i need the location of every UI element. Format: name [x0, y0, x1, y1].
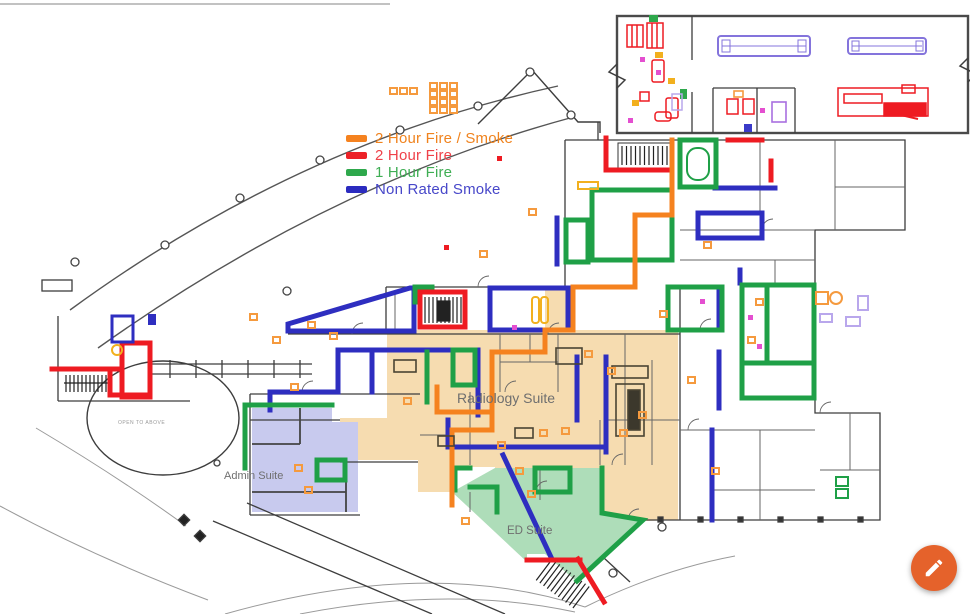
barrier-legend: 2 Hour Fire / Smoke 2 Hour Fire 1 Hour F…: [346, 130, 513, 198]
legend-item-label: 2 Hour Fire / Smoke: [375, 130, 513, 147]
legend-item: 2 Hour Fire: [346, 147, 513, 163]
air-handler-units: [718, 36, 926, 56]
site-curves: [70, 70, 600, 348]
pencil-icon: [923, 557, 945, 579]
open-to-above-note: OPEN TO ABOVE: [118, 420, 165, 426]
ed-suite-label: ED Suite: [507, 525, 552, 537]
floor-plan-canvas[interactable]: Radiology Suite Admin Suite ED Suite OPE…: [0, 0, 970, 614]
legend-item: Non Rated Smoke: [346, 181, 513, 197]
legend-swatch: [346, 169, 367, 176]
floor-plan-svg: Radiology Suite Admin Suite ED Suite OPE…: [0, 0, 970, 614]
admin-suite-label: Admin Suite: [224, 470, 283, 482]
mechanical-equipment-red: [444, 23, 928, 250]
edit-fab-button[interactable]: [911, 545, 957, 591]
legend-swatch: [346, 135, 367, 142]
legend-item-label: 2 Hour Fire: [375, 147, 452, 164]
legend-swatch: [346, 152, 367, 159]
equipment-markers-blue: [112, 314, 156, 342]
radiology-suite-label: Radiology Suite: [457, 390, 555, 406]
legend-swatch: [346, 186, 367, 193]
legend-item-label: 1 Hour Fire: [375, 164, 452, 181]
legend-item-label: Non Rated Smoke: [375, 181, 501, 198]
legend-item: 1 Hour Fire: [346, 164, 513, 180]
legend-item: 2 Hour Fire / Smoke: [346, 130, 513, 146]
